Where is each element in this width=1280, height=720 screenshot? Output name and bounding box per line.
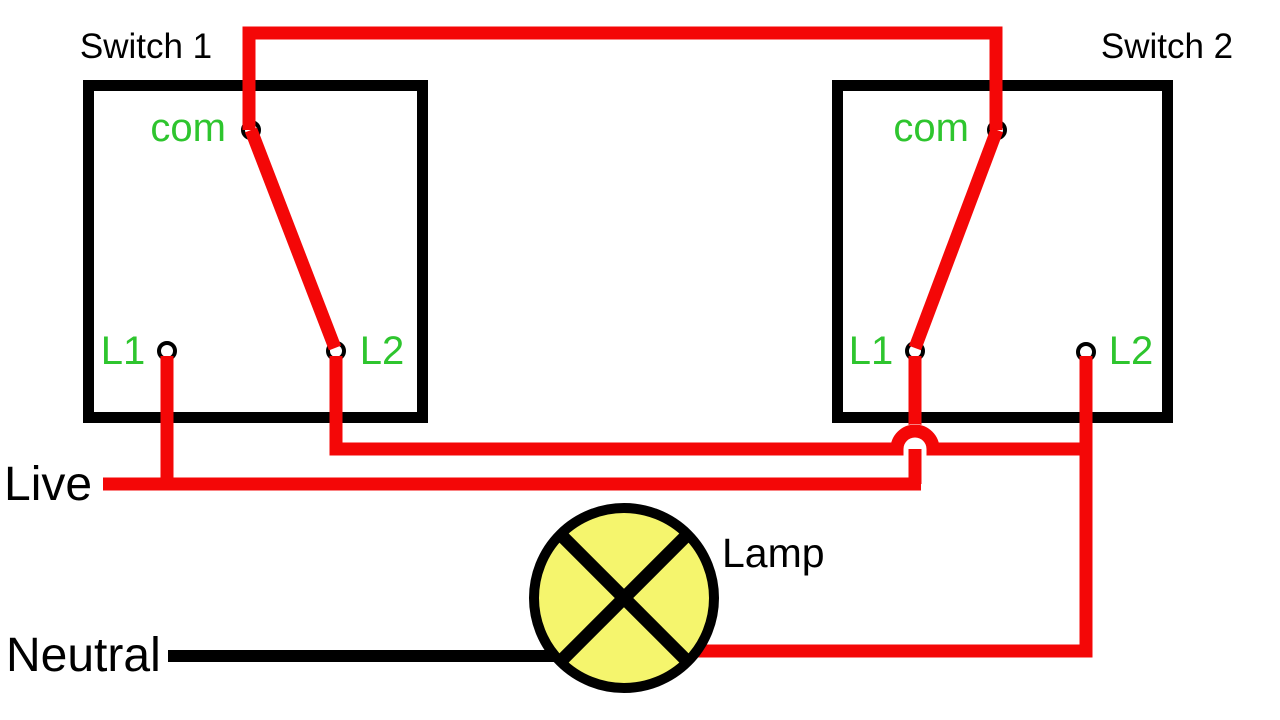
switch1-title: Switch 1 [80,27,212,66]
switch2-com-label: com [893,106,969,150]
switch2: Switch 2 com L1 L2 [838,27,1234,418]
neutral-label: Neutral [6,629,161,682]
switch2-title: Switch 2 [1101,27,1233,66]
switch1-l2-label: L2 [360,329,405,373]
switch1-l1-label: L1 [101,329,146,373]
wire-strapper-l2-to-l2 [336,356,1086,449]
wire-switch2-l2-to-lamp [690,356,1086,651]
switch1-com-label: com [150,106,226,150]
wiring-diagram: Switch 1 com L1 L2 Switch 2 com L1 L2 [0,0,1280,720]
wire-switch2-blade-com-l1 [915,130,997,348]
live-label: Live [4,458,92,511]
wire-switch1-blade-com-l2 [251,130,335,348]
switch2-l1-label: L1 [849,329,894,373]
lamp-label: Lamp [722,530,825,576]
lamp-symbol [534,508,714,688]
wiring-diagram-canvas: Switch 1 com L1 L2 Switch 2 com L1 L2 [0,0,1280,720]
switch2-l2-label: L2 [1109,329,1154,373]
